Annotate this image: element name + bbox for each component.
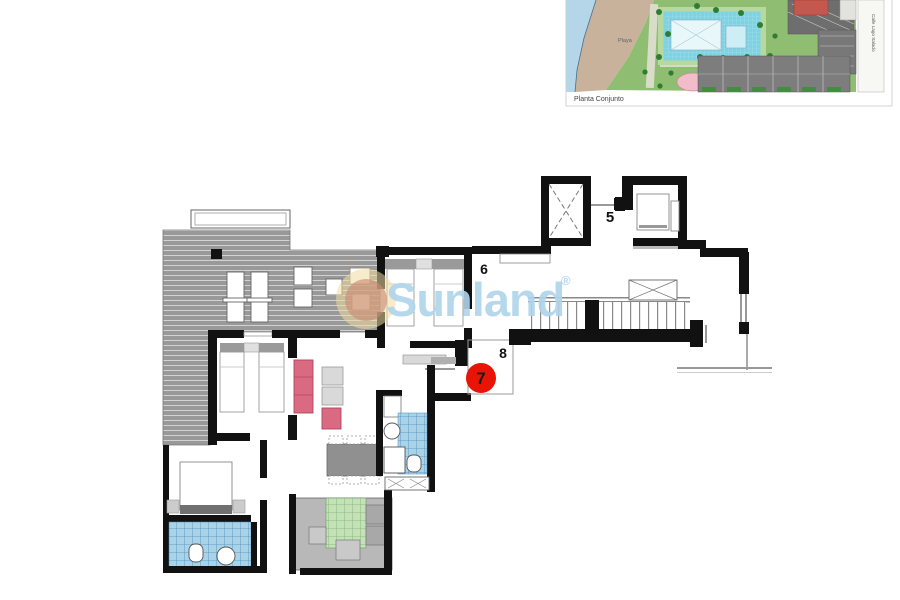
nightstand <box>244 343 259 352</box>
site-plan-caption: Planta Conjunto <box>574 96 624 103</box>
registered-mark: ® <box>561 273 571 288</box>
accent-building <box>794 0 828 15</box>
bed <box>180 462 232 510</box>
appliance <box>366 526 386 545</box>
sink <box>217 547 235 565</box>
bathroom-lower <box>163 522 267 573</box>
window <box>244 332 272 336</box>
row-houses <box>698 56 850 92</box>
bed-foot <box>180 505 232 514</box>
beach-label: Playa <box>618 38 633 44</box>
wardrobe <box>385 477 429 490</box>
site-plan: Calle Lago Salado Playa Planta Conjunto <box>566 0 892 106</box>
bed <box>259 352 284 412</box>
terrace-table <box>294 267 312 285</box>
armchair <box>322 367 343 385</box>
bed <box>220 352 244 412</box>
toilet <box>407 455 421 472</box>
badge-label: 7 <box>476 369 485 388</box>
brand-wordmark: Sunland <box>386 273 564 326</box>
niche <box>500 254 550 263</box>
unit-label-5: 5 <box>606 209 614 226</box>
shower <box>384 447 405 473</box>
elevator-car <box>637 194 669 230</box>
elevator-rail <box>671 201 679 231</box>
appliance <box>309 527 326 544</box>
dining-table <box>327 444 381 476</box>
appliance <box>366 505 386 524</box>
bathroom-floor <box>169 522 251 567</box>
unit-label-8: 8 <box>499 345 507 361</box>
sun-lounger <box>223 272 248 322</box>
toilet <box>189 544 203 562</box>
pillar <box>211 249 222 259</box>
terrace-deck <box>163 230 380 445</box>
sofa <box>294 360 313 413</box>
street-label: Calle Lago Salado <box>871 14 876 52</box>
bathroom-middle <box>376 390 435 492</box>
kitchen <box>289 490 392 575</box>
dining-area <box>327 436 381 484</box>
entry-step <box>431 357 456 364</box>
window <box>740 294 742 322</box>
plan-canvas: Calle Lago Salado Playa Planta Conjunto <box>0 0 900 600</box>
armchair <box>322 387 343 405</box>
unit-badge-7: 7 <box>466 363 496 393</box>
watermark: Sunland ® <box>336 269 571 329</box>
sun-lounger <box>247 272 272 322</box>
nightstand <box>233 500 245 513</box>
nightstand <box>167 500 179 513</box>
sun-logo-inner <box>345 279 387 321</box>
street <box>858 0 884 92</box>
nightstand <box>416 259 432 269</box>
appliance <box>336 540 360 560</box>
terrace-table <box>294 289 312 307</box>
living-room <box>294 360 343 429</box>
sink <box>384 423 400 439</box>
ottoman <box>322 408 341 429</box>
